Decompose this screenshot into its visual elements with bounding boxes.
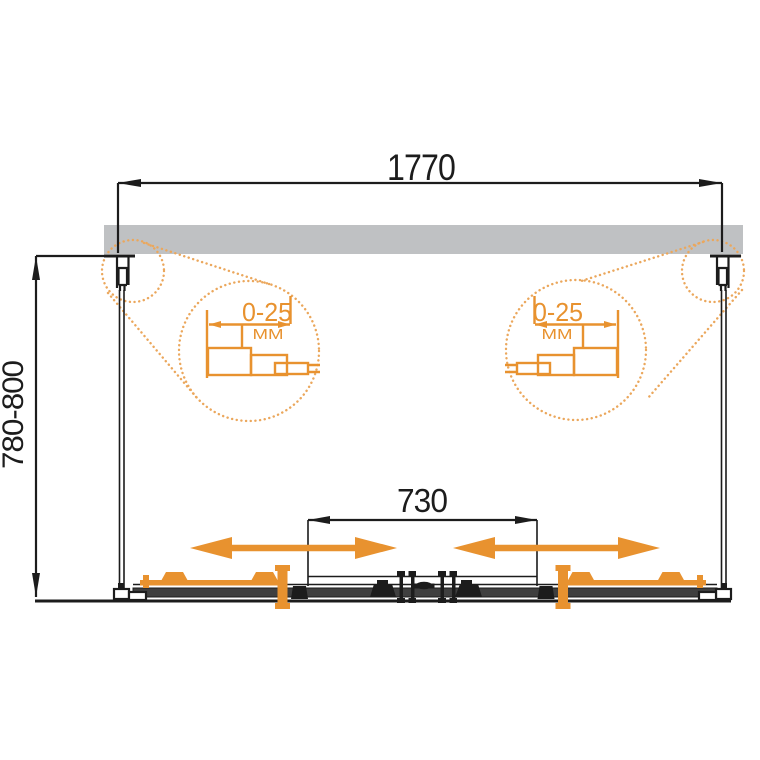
opening-dimension-label: 730 (397, 482, 448, 519)
arrowhead-icon (515, 516, 537, 524)
roller-icon (568, 572, 595, 581)
guide-block (461, 580, 472, 584)
door-bracket (558, 566, 568, 609)
corner-fitting (716, 589, 731, 599)
arrowhead-icon (32, 256, 40, 280)
guide-block (370, 584, 396, 597)
left-detail-callout: 0-25 MM (102, 240, 320, 421)
profile-outline (538, 355, 574, 375)
wall-bracket (717, 256, 729, 291)
corner-fitting (114, 589, 129, 599)
depth-dimension-label: 780-800 (0, 361, 30, 469)
corner-fitting (129, 592, 146, 600)
fixed-panel-stop (291, 586, 308, 599)
door-connector (416, 582, 433, 590)
corner-fitting (699, 592, 716, 600)
dimension-line (36, 256, 133, 597)
glass-edge-lines (505, 365, 517, 372)
right-detail-callout: 0-25 MM (505, 240, 744, 420)
double-headed-arrow-icon-right (453, 537, 660, 559)
profile-outline (251, 355, 287, 375)
door-bracket (275, 565, 290, 571)
guide-block (377, 580, 388, 584)
right-detail-range-label: 0-25 (533, 297, 583, 327)
left-wall-profile (104, 256, 135, 589)
rail-end-cap (143, 575, 149, 588)
corner-fitting (721, 583, 727, 589)
profile-outline (574, 348, 617, 375)
glass-edge-lines (308, 365, 320, 372)
wall-strip (104, 225, 743, 254)
corner-fitting (118, 583, 124, 589)
profile-outline (208, 348, 251, 375)
roller-icon (251, 572, 278, 581)
threshold-rail (133, 588, 717, 597)
arrowhead-icon (308, 516, 330, 524)
roller-icon (658, 572, 685, 581)
arrowhead-icon (209, 321, 221, 328)
right-wall-profile (710, 256, 741, 589)
technical-drawing-canvas: 0-25 MM 0-25 MM 1770 780-800 (0, 0, 760, 760)
arrowhead-icon (32, 573, 40, 597)
right-detail-unit-label: MM (542, 326, 573, 343)
bottom-rail-assembly (35, 565, 731, 609)
glass-panel-lines (120, 290, 125, 589)
wall-bracket (117, 256, 129, 291)
rail-end-cap (697, 575, 703, 588)
profile-outline (517, 363, 550, 374)
door-bracket (275, 603, 290, 609)
door-bracket (556, 603, 571, 609)
door-bracket (556, 565, 571, 571)
glass-panel-lines (722, 290, 727, 589)
arrowhead-icon (604, 321, 616, 328)
left-detail-range-label: 0-25 (242, 297, 292, 327)
opening-dimension: 730 (308, 482, 537, 586)
left-corner-bracket (114, 583, 146, 600)
double-headed-arrow-icon-left (190, 537, 397, 559)
guide-block (455, 584, 482, 597)
door-connector (414, 584, 418, 588)
door-bracket (278, 566, 288, 609)
door-connector (431, 584, 435, 588)
roller-icon (161, 572, 188, 581)
arrowhead-icon (118, 179, 141, 187)
left-detail-unit-label: MM (253, 326, 284, 343)
depth-dimension: 780-800 (0, 256, 133, 597)
shower-enclosure-plan-drawing: 0-25 MM 0-25 MM 1770 780-800 (0, 0, 760, 760)
width-dimension-label: 1770 (387, 147, 455, 188)
right-corner-bracket (699, 583, 731, 600)
profile-outline (275, 363, 308, 374)
arrowhead-icon (699, 179, 722, 187)
fixed-panel-stop (538, 586, 555, 599)
